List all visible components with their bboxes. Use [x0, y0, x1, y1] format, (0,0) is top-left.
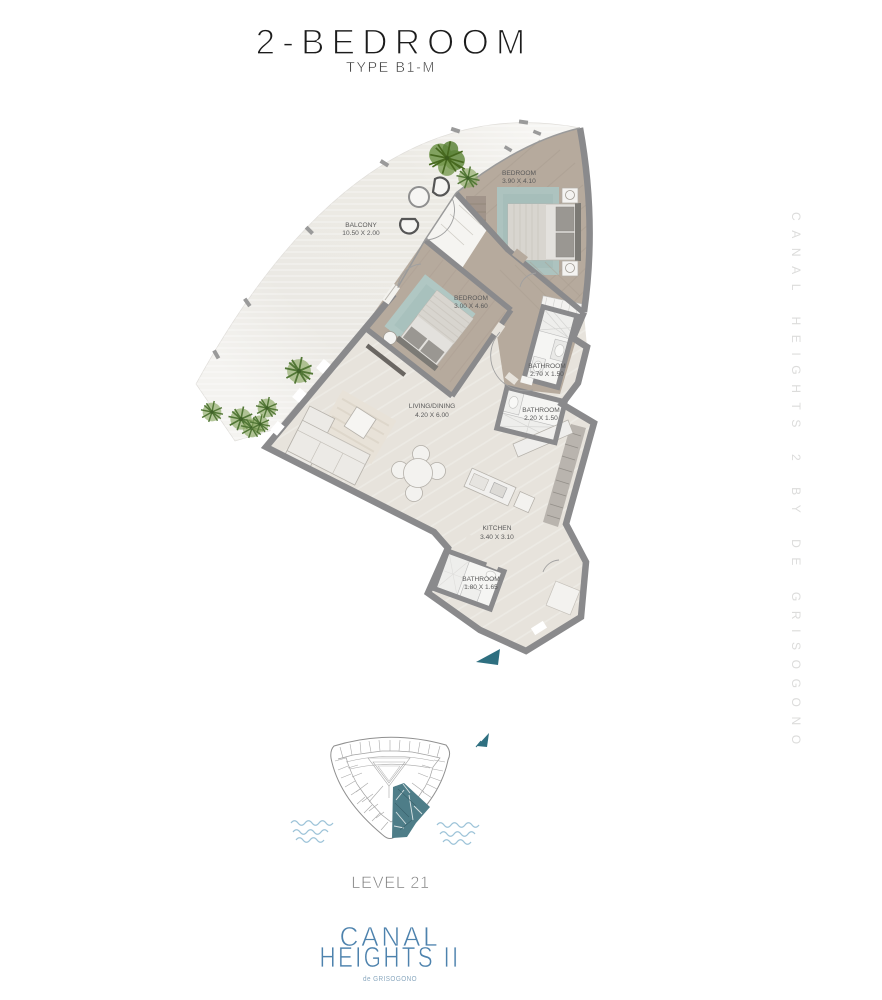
svg-text:1.80 X 1.65: 1.80 X 1.65	[464, 584, 498, 591]
svg-text:KITCHEN: KITCHEN	[483, 525, 512, 532]
svg-text:2.20 X 1.50: 2.20 X 1.50	[524, 415, 558, 422]
svg-text:de GRISOGONO: de GRISOGONO	[363, 976, 417, 984]
svg-text:BALCONY: BALCONY	[345, 222, 377, 229]
svg-text:BATHROOM: BATHROOM	[462, 576, 500, 583]
svg-text:3.40 X 3.10: 3.40 X 3.10	[480, 534, 514, 541]
svg-text:2.70 X 1.50: 2.70 X 1.50	[530, 371, 564, 378]
svg-text:3.00 X 4.60: 3.00 X 4.60	[454, 303, 488, 310]
svg-text:3.90 X 4.10: 3.90 X 4.10	[502, 178, 536, 185]
svg-text:CANAL HEIGHTS 2 BY DE GRISOGON: CANAL HEIGHTS 2 BY DE GRISOGONO	[789, 212, 803, 754]
svg-text:LIVING/DINING: LIVING/DINING	[409, 403, 456, 410]
svg-text:BEDROOM: BEDROOM	[454, 295, 488, 302]
svg-text:TYPE B1-M: TYPE B1-M	[346, 60, 436, 76]
svg-text:2-BEDROOM: 2-BEDROOM	[256, 23, 533, 62]
svg-text:LEVEL 21: LEVEL 21	[351, 874, 430, 892]
svg-text:10.50 X 2.00: 10.50 X 2.00	[342, 230, 380, 237]
svg-text:BATHROOM: BATHROOM	[528, 363, 566, 370]
svg-text:HEIGHTS II: HEIGHTS II	[320, 942, 461, 973]
svg-text:BATHROOM: BATHROOM	[522, 407, 560, 414]
svg-text:4.20 X 6.00: 4.20 X 6.00	[415, 412, 449, 419]
svg-text:BEDROOM: BEDROOM	[502, 170, 536, 177]
